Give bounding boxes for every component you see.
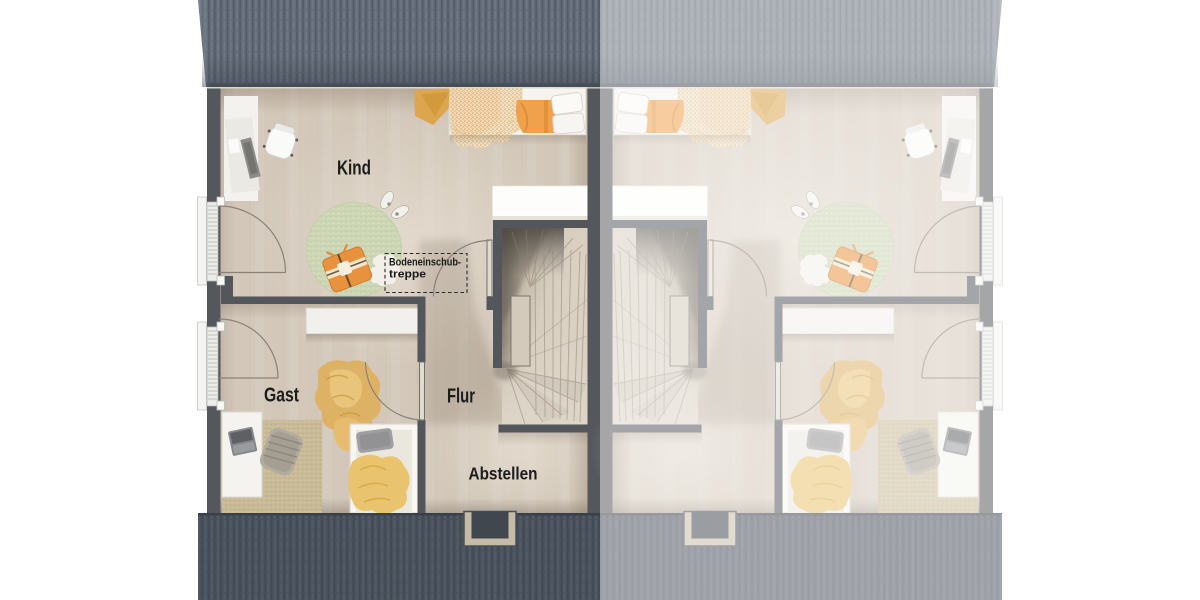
svg-text:treppe: treppe	[389, 269, 426, 281]
svg-text:Bodeneinschub-: Bodeneinschub-	[389, 257, 461, 269]
svg-text:Abstellen: Abstellen	[469, 464, 538, 484]
svg-text:Gast: Gast	[264, 385, 299, 407]
svg-text:Flur: Flur	[447, 386, 475, 408]
svg-text:Kind: Kind	[337, 158, 371, 180]
